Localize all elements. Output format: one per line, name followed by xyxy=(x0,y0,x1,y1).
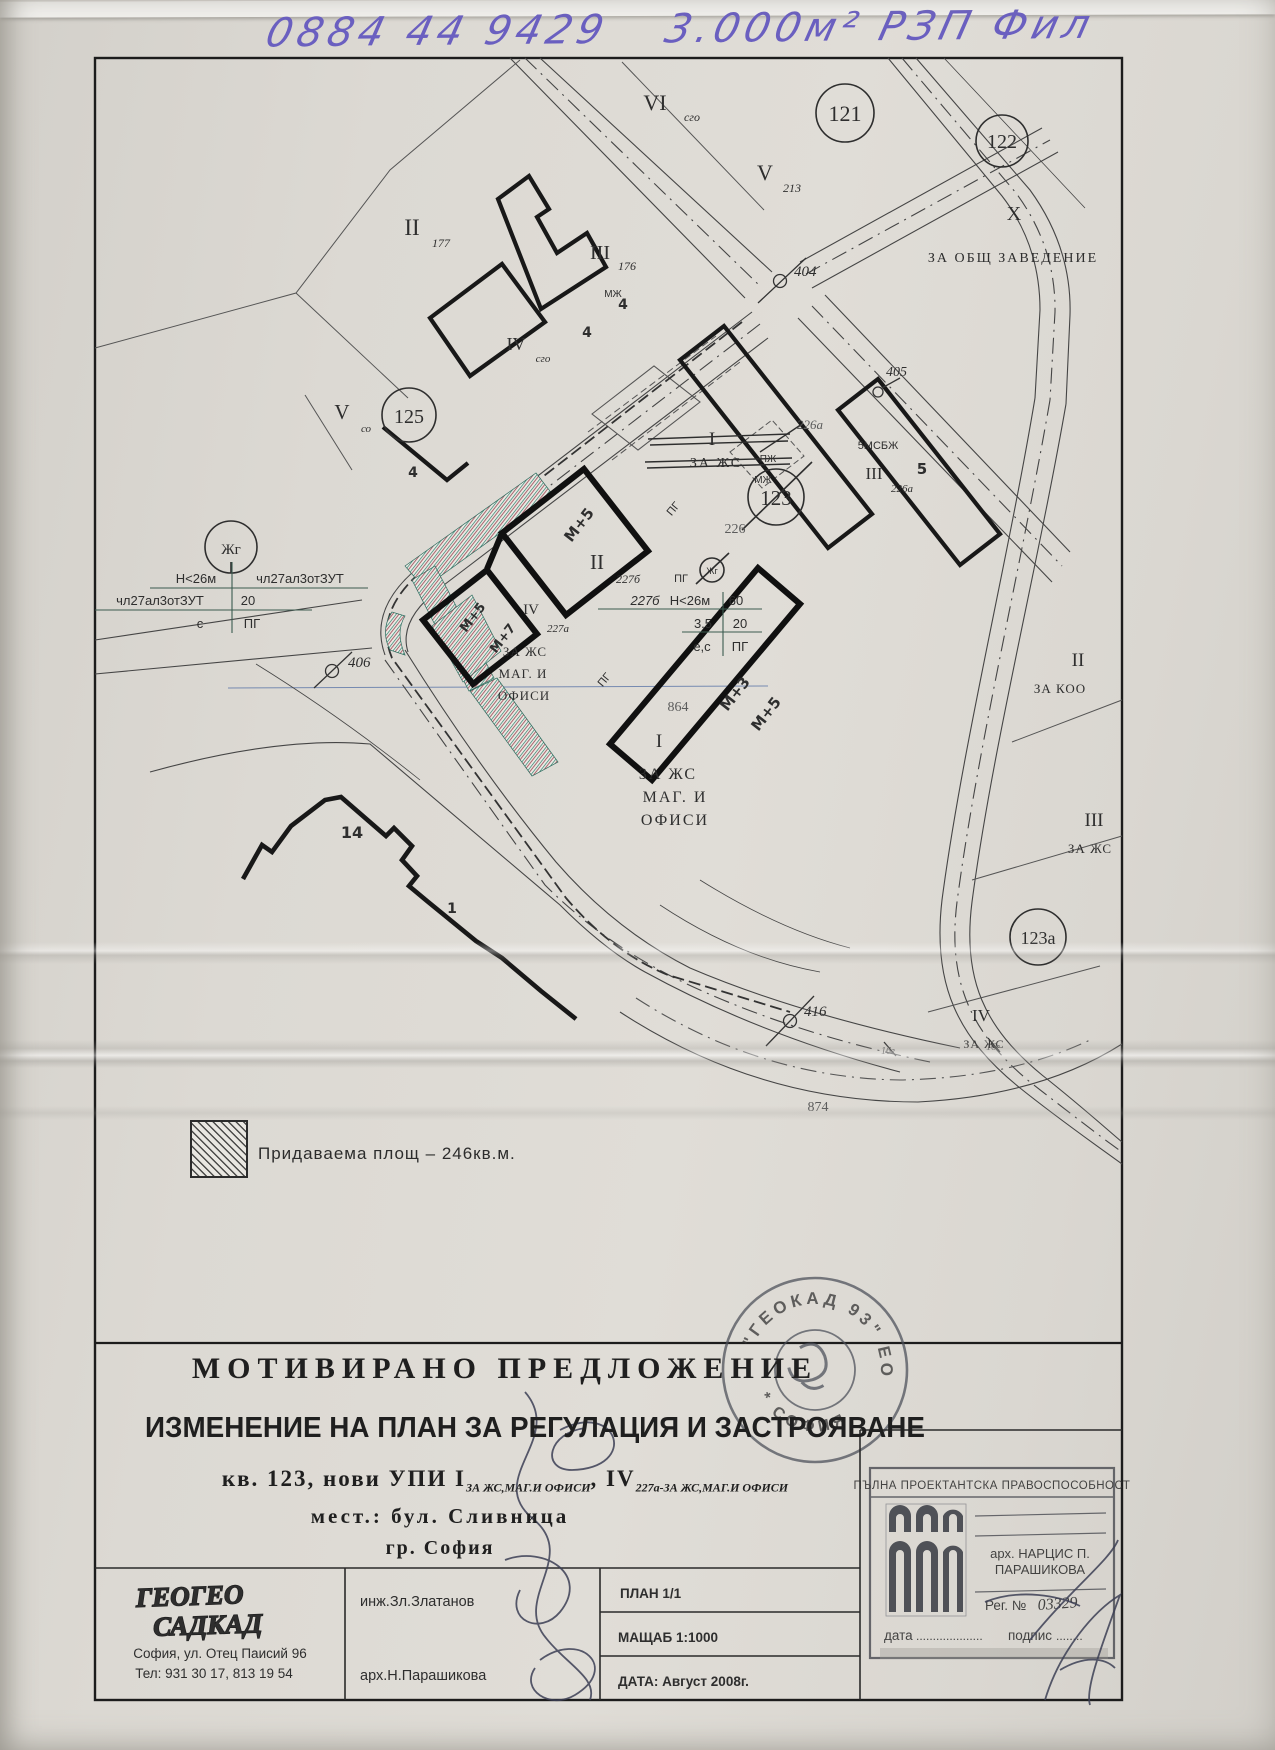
scanned-plan-page: 0884 44 94293.000м² РЗП Фил xyxy=(0,0,1275,1750)
geokad-round-stamp: "ГЕОКАД 93" ЕООД * СОФИЯ * xyxy=(0,0,1239,1482)
label-parcel-iv227a: IV xyxy=(523,602,539,618)
marker-406-label: 406 xyxy=(348,655,371,671)
label-874: 874 xyxy=(808,1100,829,1115)
label-4b: 4 xyxy=(582,325,592,341)
plan-date: ДАТА: Август 2008г. xyxy=(618,1674,749,1689)
architect-name: арх.Н.Парашикова xyxy=(360,1668,487,1684)
label-16g-a: 16г xyxy=(881,1046,895,1057)
plan-scale: МАЩАБ 1:1000 xyxy=(618,1630,718,1645)
label-m5-c: М+5 xyxy=(747,693,785,734)
label-parcel-ii227b-sub: 227б xyxy=(616,572,641,586)
label-226a: 226а xyxy=(797,417,824,432)
title-upi-sub1: ЗА ЖС,МАГ.И ОФИСИ xyxy=(466,1481,591,1495)
title-sub: ИЗМЕНЕНИЕ НА ПЛАН ЗА РЕГУЛАЦИЯ И ЗАСТРОЯ… xyxy=(145,1412,865,1445)
plan-number: ПЛАН 1/1 xyxy=(620,1586,682,1601)
label-old-i: I xyxy=(709,429,715,450)
cert-name-line1: арх. НАРЦИС П. xyxy=(990,1546,1090,1561)
label-parcel-ii-koo: II xyxy=(1072,650,1085,671)
ann1-rule1: чл27ал3отЗУТ xyxy=(256,571,344,586)
label-parcel-vi: VI xyxy=(643,90,666,115)
title-upi-line: кв. 123, нови УПИ IЗА ЖС,МАГ.И ОФИСИ, IV… xyxy=(140,1466,870,1496)
label-parcel-vi-sub: сго xyxy=(684,110,700,124)
legend-hatch-swatch xyxy=(190,1120,248,1178)
label-parcel-ii227b: II xyxy=(590,550,604,574)
label-parcel-iv-zhs-use: ЗА ЖС xyxy=(963,1037,1004,1051)
label-parcel-x-use: ЗА ОБЩ ЗАВЕДЕНИЕ xyxy=(928,251,1098,266)
label-use-big-3: ОФИСИ xyxy=(641,812,709,829)
label-5msbzh: 5МСБЖ xyxy=(858,440,899,452)
label-parcel-x: Х xyxy=(1007,203,1022,225)
cert-sign-d: ........ xyxy=(1056,1629,1083,1643)
ann1-height: Н<26м xyxy=(176,571,216,586)
legend-label: Придаваема площ – 246кв.м. xyxy=(258,1144,516,1164)
label-parcel-ii177-sub: 177 xyxy=(432,236,451,250)
circle-zhg: Жг xyxy=(221,542,241,558)
title-upi-pre: кв. 123, нови УПИ I xyxy=(222,1466,466,1491)
label-m5-a: М+5 xyxy=(560,504,598,545)
label-old-i-use: ЗА ЖС xyxy=(690,456,742,471)
drawing-frame xyxy=(95,58,1122,1700)
geo-logo-line1: ГЕОГЕО xyxy=(134,1579,244,1613)
label-parcel-iv-sgo: IV xyxy=(507,334,526,354)
circle-122: 122 xyxy=(987,131,1017,153)
cert-header: ПЪЛНА ПРОЕКТАНТСКА ПРАВОСПОСОБНОСТ xyxy=(854,1480,1131,1492)
firm-address: София, ул. Отец Паисий 96 xyxy=(133,1646,306,1661)
label-parcel-v-so: V xyxy=(334,400,349,424)
label-pzh: ПЖ xyxy=(760,454,777,465)
label-mzh2: МЖ xyxy=(754,475,772,486)
cert-date-d: .................... xyxy=(916,1629,983,1643)
cert-sign-label: подпис xyxy=(1008,1628,1052,1643)
label-use-small-3: ОФИСИ xyxy=(498,688,550,703)
ann2-pg: ПГ xyxy=(732,639,748,654)
ann1-rule2: чл27ал3отЗУТ xyxy=(116,593,204,608)
label-use-small-2: МАГ. И xyxy=(499,666,548,681)
parcel-number-circles xyxy=(205,84,1066,965)
title-main: МОТИВИРАНО ПРЕДЛОЖЕНИЕ xyxy=(160,1352,850,1386)
certification-stamp: ПЪЛНА ПРОЕКТАНТСКА ПРАВОСПОСОБНОСТ арх. … xyxy=(854,1468,1131,1659)
marker-416-label: 416 xyxy=(804,1004,827,1020)
label-pg1: ПГ xyxy=(665,500,683,518)
ann1-s: с xyxy=(197,616,204,631)
title-upi-sub2: 227а-ЗА ЖС,МАГ.И ОФИСИ xyxy=(636,1481,789,1495)
title-upi-mid: , IV xyxy=(591,1466,636,1491)
label-parcel-ii177: II xyxy=(404,215,419,240)
circle-121: 121 xyxy=(829,101,862,126)
label-new-i: I xyxy=(656,731,662,752)
label-226a2: 226а xyxy=(891,483,914,495)
svg-text:* СОФИЯ *: * СОФИЯ * xyxy=(3,0,1203,1447)
firm-phone: Тел: 931 30 17, 813 19 54 xyxy=(135,1666,293,1681)
label-use-big-2: МАГ. И xyxy=(643,789,708,806)
circle-123a: 123а xyxy=(1021,928,1056,948)
ann2-h26: Н<26м xyxy=(670,593,710,608)
geo-logo-line2: САДКАД xyxy=(153,1608,264,1642)
ann2-60: 60 xyxy=(729,593,743,608)
label-parcel-iv-zhs: IV xyxy=(972,1006,991,1025)
ann2-es: е,с xyxy=(693,639,711,654)
label-4a: 4 xyxy=(618,297,628,313)
label-use-big-1: ЗА ЖС xyxy=(639,766,697,783)
label-4c: 4 xyxy=(408,465,418,481)
cert-date-label: дата xyxy=(884,1628,913,1643)
label-parcel-iii176-sub: 176 xyxy=(618,259,636,273)
label-pg2: ПГ xyxy=(674,573,688,585)
kab-logo xyxy=(886,1504,966,1616)
ann1-val: 20 xyxy=(241,593,255,608)
label-iii5: III xyxy=(866,464,883,483)
title-city: гр. София xyxy=(160,1537,720,1560)
ann1-pg: ПГ xyxy=(244,616,260,631)
label-parcel-iii-zhs-use: ЗА ЖС xyxy=(1068,841,1112,856)
engineer-name: инж.Зл.Златанов xyxy=(360,1594,475,1610)
circle-125: 125 xyxy=(394,406,424,428)
label-parcel-ii-koo-use: ЗА КОО xyxy=(1034,681,1086,696)
label-zhg-small: Жг xyxy=(706,566,718,576)
label-parcel-iv227a-sub: 227а xyxy=(547,623,570,635)
plan-labels: VI сго 121 V 213 122 Х ЗА ОБЩ ЗАВЕДЕНИЕ … xyxy=(116,90,1112,1115)
label-use-small-1: ЗА ЖС xyxy=(503,644,547,659)
label-226: 226 xyxy=(725,522,746,537)
building-14 xyxy=(243,797,576,1019)
title-location: мест.: бул. Сливница xyxy=(160,1504,720,1529)
stamp-text-bottom: * СОФИЯ * xyxy=(3,0,1203,1447)
label-14: 14 xyxy=(341,823,363,842)
marker-406 xyxy=(314,652,352,688)
roads xyxy=(95,58,1122,1164)
label-864: 864 xyxy=(668,700,689,715)
label-1: 1 xyxy=(447,901,457,917)
label-parcel-v213-sub: 213 xyxy=(783,181,801,195)
label-parcel-v213: V xyxy=(757,160,773,185)
circle-123: 123 xyxy=(760,486,792,510)
ann2-227b: 227б xyxy=(629,593,660,608)
marker-405-label: 405 xyxy=(886,365,907,380)
footer-content: ГЕОГЕО САДКАД София, ул. Отец Паисий 96 … xyxy=(133,1579,749,1689)
label-parcel-iv-sgo-sub: сго xyxy=(536,353,551,365)
label-parcel-iii-zhs: III xyxy=(1085,810,1104,831)
label-parcel-v-so-sub: со xyxy=(361,423,372,435)
marker-404-label: 404 xyxy=(794,264,817,280)
ann2-35: 3.5 xyxy=(694,616,712,631)
ann2-20: 20 xyxy=(733,616,747,631)
label-5: 5 xyxy=(917,460,927,478)
label-parcel-iii176: III xyxy=(590,242,610,264)
cert-name-line2: ПАРАШИКОВА xyxy=(995,1562,1086,1577)
